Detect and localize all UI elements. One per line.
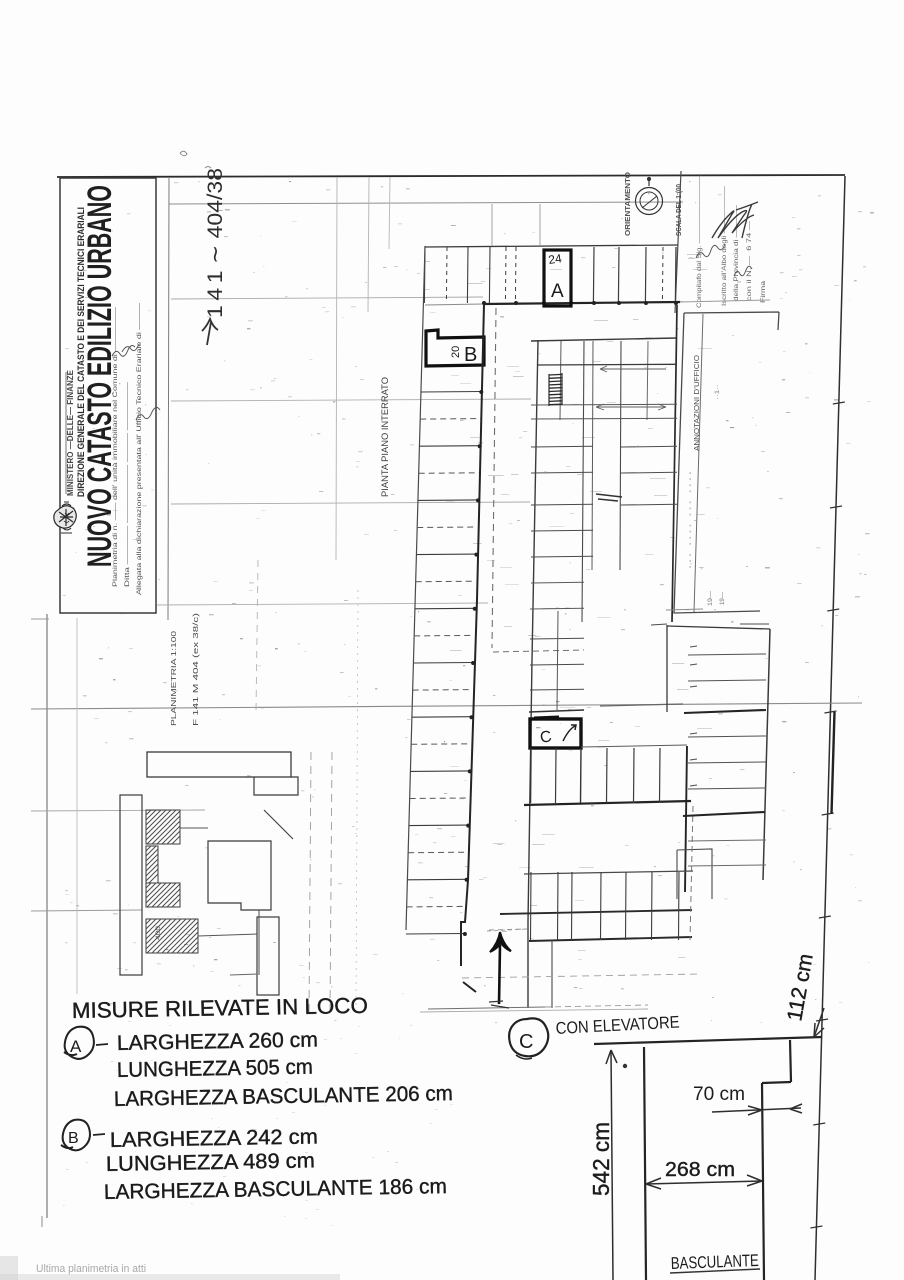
svg-text:Ditta ———— —————— ——— —————: Ditta ———— —————— ——— —————: [124, 381, 131, 587]
svg-text:MINISTERO —DELLE— FINANZE: MINISTERO —DELLE— FINANZE: [66, 369, 75, 496]
svg-text:LUNGHEZZA 489 cm: LUNGHEZZA 489 cm: [106, 1149, 315, 1176]
svg-text:Ultima planimetria in atti: Ultima planimetria in atti: [36, 1263, 146, 1275]
svg-text:con il N. — 6 74 —: con il N. — 6 74 —: [747, 221, 753, 301]
svg-text:400: 400: [156, 925, 162, 940]
svg-text:Compilato dal Sig. —————————: Compilato dal Sig. —————————: [697, 174, 703, 308]
svg-text:Allegata alla dichiarazione pr: Allegata alla dichiarazione presentata a…: [136, 302, 143, 595]
svg-text:Iscritto all’Albo degli ——————: Iscritto all’Albo degli ——————: [722, 186, 728, 306]
svg-text:A: A: [70, 1037, 82, 1056]
svg-text:ORIENTAMENTO: ORIENTAMENTO: [625, 171, 632, 236]
svg-text:ANNOTAZIONI D’UFFICIO: ANNOTAZIONI D’UFFICIO: [692, 355, 701, 451]
svg-text:della Provincia di ————: della Provincia di ————: [734, 205, 740, 301]
svg-text:MISURE RILEVATE IN LOCO: MISURE RILEVATE IN LOCO: [72, 993, 368, 1023]
svg-text:19—: 19—: [708, 591, 714, 606]
svg-text:F 141 M 404 (ex 38/c): F 141 M 404 (ex 38/c): [191, 612, 200, 726]
svg-text:C: C: [519, 1031, 533, 1053]
svg-text:PLANIMETRIA 1:100: PLANIMETRIA 1:100: [169, 631, 178, 726]
svg-text:B: B: [68, 1130, 79, 1147]
svg-text:··· ···· ··· ····: ··· ···· ··· ····: [687, 470, 694, 570]
svg-text:LUNGHEZZA 505 cm: LUNGHEZZA 505 cm: [117, 1056, 313, 1082]
svg-text:24: 24: [547, 251, 562, 267]
svg-text:LARGHEZZA 260 cm: LARGHEZZA 260 cm: [117, 1028, 318, 1055]
svg-text:542 cm: 542 cm: [588, 1122, 614, 1196]
svg-text:20: 20: [450, 346, 462, 358]
svg-text:70 cm: 70 cm: [693, 1084, 745, 1105]
svg-text:1 4 1 ∼ 404/38: 1 4 1 ∼ 404/38: [204, 168, 227, 318]
svg-text:··1··: ··1··: [715, 384, 721, 400]
svg-text:268 cm: 268 cm: [665, 1159, 735, 1181]
svg-text:Planimetria di n. —— dell' uni: Planimetria di n. —— dell' unità immobil…: [112, 306, 119, 587]
svg-text:A: A: [551, 281, 564, 302]
svg-text:PIANTA PIANO INTERRATO: PIANTA PIANO INTERRATO: [380, 377, 390, 497]
svg-text:B: B: [464, 344, 477, 366]
svg-text:19—: 19—: [720, 592, 726, 605]
svg-text:LARGHEZZA 242 cm: LARGHEZZA 242 cm: [110, 1125, 318, 1152]
svg-text:Firma: Firma: [761, 280, 767, 303]
